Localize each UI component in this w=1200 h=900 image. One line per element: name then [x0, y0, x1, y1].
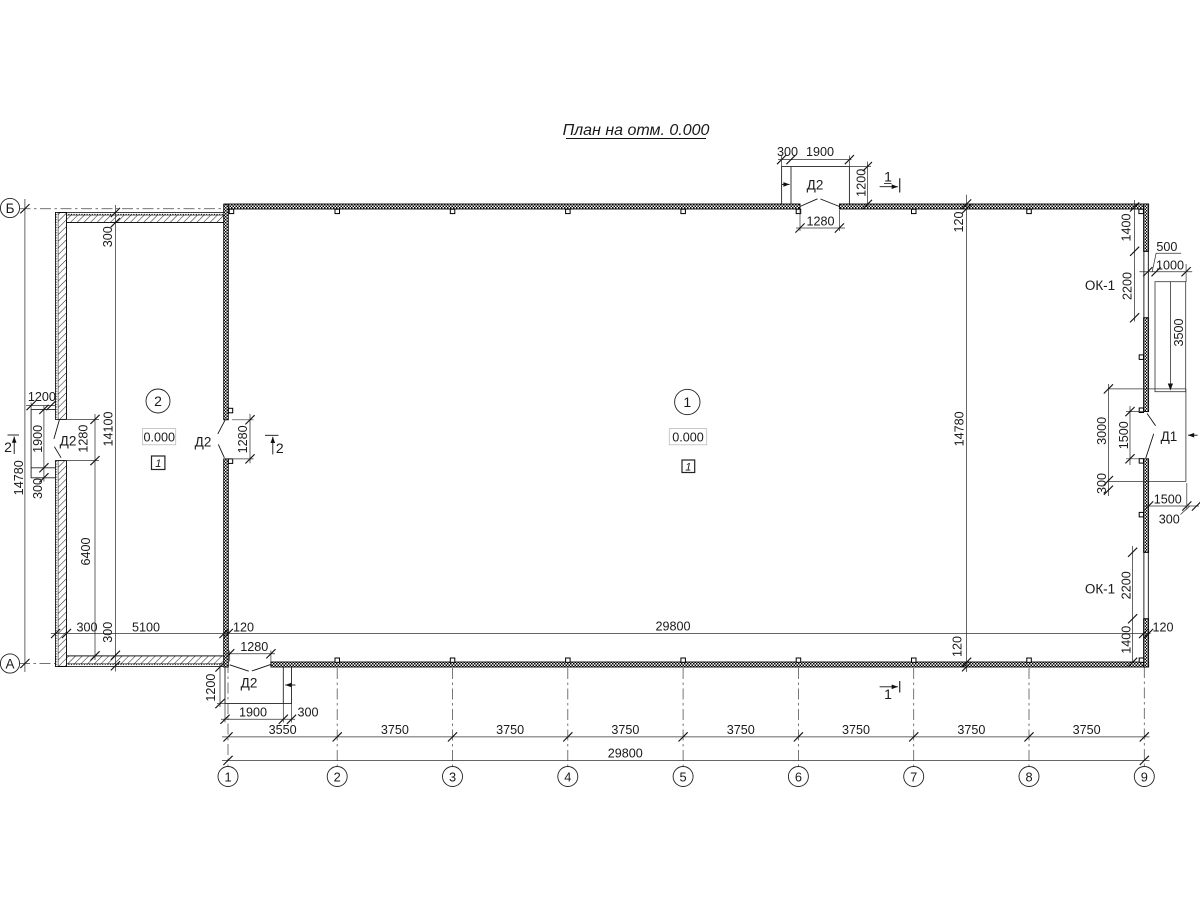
svg-text:4: 4 [564, 769, 571, 784]
svg-text:300: 300 [1159, 512, 1180, 526]
svg-text:3: 3 [449, 769, 456, 784]
svg-text:9: 9 [1141, 769, 1148, 784]
svg-text:План на отм. 0.000: План на отм. 0.000 [563, 122, 710, 139]
svg-text:29800: 29800 [608, 747, 643, 761]
svg-text:1280: 1280 [806, 214, 834, 228]
svg-text:300: 300 [76, 621, 97, 635]
svg-text:1900: 1900 [239, 705, 267, 719]
svg-text:300: 300 [101, 226, 115, 247]
svg-text:2: 2 [276, 440, 284, 456]
svg-text:1200: 1200 [28, 390, 56, 404]
svg-text:1900: 1900 [806, 145, 834, 159]
svg-text:300: 300 [777, 145, 798, 159]
svg-text:14780: 14780 [12, 460, 26, 495]
svg-text:1: 1 [224, 769, 231, 784]
svg-text:Б: Б [6, 201, 15, 216]
svg-text:1: 1 [884, 169, 892, 185]
svg-text:3500: 3500 [1172, 318, 1186, 346]
svg-text:Д2: Д2 [195, 435, 212, 450]
svg-text:6400: 6400 [79, 537, 93, 565]
svg-text:0.000: 0.000 [144, 431, 176, 445]
svg-text:3750: 3750 [381, 723, 409, 737]
svg-text:1400: 1400 [1120, 626, 1134, 654]
svg-text:120: 120 [952, 211, 966, 232]
svg-text:0.000: 0.000 [672, 431, 704, 445]
svg-text:3750: 3750 [842, 723, 870, 737]
svg-text:5: 5 [680, 769, 687, 784]
svg-text:1500: 1500 [1154, 492, 1182, 506]
svg-text:14100: 14100 [102, 411, 116, 446]
svg-text:1: 1 [155, 458, 161, 470]
svg-text:Д2: Д2 [807, 178, 824, 193]
svg-text:2: 2 [4, 439, 12, 455]
svg-text:7: 7 [910, 769, 917, 784]
svg-text:ОК-1: ОК-1 [1085, 278, 1115, 293]
svg-text:1200: 1200 [855, 169, 869, 197]
svg-text:1900: 1900 [31, 425, 45, 453]
svg-text:120: 120 [950, 636, 964, 657]
svg-text:300: 300 [297, 705, 318, 719]
svg-text:Д2: Д2 [60, 434, 77, 449]
svg-text:1400: 1400 [1120, 213, 1134, 241]
svg-text:300: 300 [1095, 473, 1109, 494]
svg-text:29800: 29800 [655, 620, 690, 634]
svg-text:300: 300 [31, 478, 45, 499]
svg-text:3750: 3750 [496, 723, 524, 737]
svg-text:А: А [5, 657, 14, 672]
svg-text:8: 8 [1025, 769, 1032, 784]
svg-text:1280: 1280 [240, 640, 268, 654]
svg-text:300: 300 [101, 622, 115, 643]
svg-text:1000: 1000 [1156, 258, 1184, 272]
svg-text:1: 1 [685, 461, 691, 473]
svg-text:2200: 2200 [1121, 272, 1135, 300]
svg-text:1280: 1280 [77, 425, 91, 453]
svg-text:14780: 14780 [953, 411, 967, 446]
svg-text:3750: 3750 [957, 723, 985, 737]
svg-text:2: 2 [334, 769, 341, 784]
svg-text:2200: 2200 [1120, 571, 1134, 599]
svg-text:5100: 5100 [132, 621, 160, 635]
svg-text:1: 1 [884, 686, 892, 702]
svg-text:3750: 3750 [611, 723, 639, 737]
svg-text:120: 120 [233, 621, 254, 635]
svg-text:3750: 3750 [727, 723, 755, 737]
svg-text:2: 2 [154, 393, 162, 409]
svg-text:1200: 1200 [204, 674, 218, 702]
svg-text:3550: 3550 [269, 723, 297, 737]
svg-text:6: 6 [795, 769, 802, 784]
svg-text:120: 120 [1152, 621, 1173, 635]
svg-text:Д2: Д2 [241, 676, 258, 691]
svg-text:ОК-1: ОК-1 [1085, 581, 1115, 596]
svg-text:500: 500 [1156, 240, 1177, 254]
svg-text:1: 1 [683, 394, 691, 410]
svg-text:1500: 1500 [1117, 421, 1131, 449]
svg-text:3750: 3750 [1073, 723, 1101, 737]
svg-text:Д1: Д1 [1161, 429, 1178, 444]
svg-text:3000: 3000 [1095, 417, 1109, 445]
svg-text:1280: 1280 [236, 425, 250, 453]
